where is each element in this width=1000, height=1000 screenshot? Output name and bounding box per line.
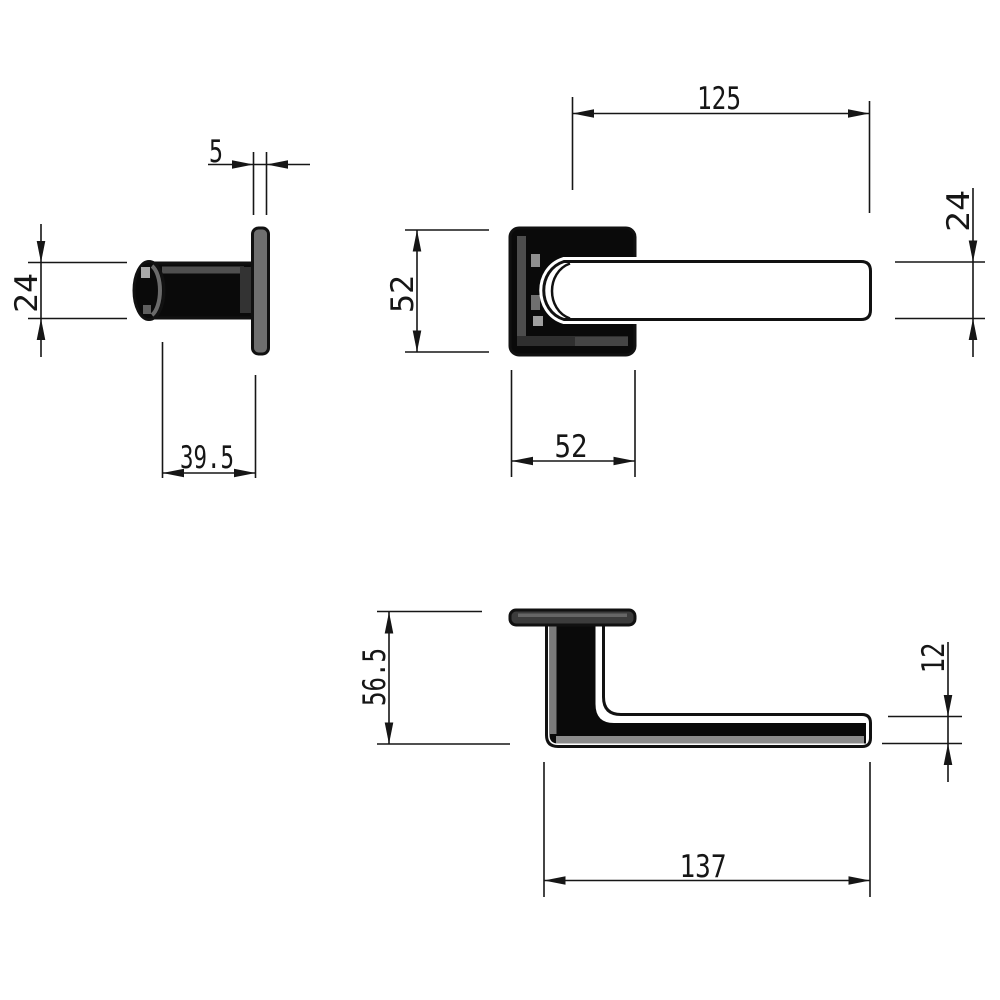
dim-rose-height: 52 xyxy=(385,230,489,352)
rose-plate-top xyxy=(510,610,635,625)
side-view: 5 24 39.5 xyxy=(9,134,310,478)
dim-label-rose-width: 52 xyxy=(555,429,588,465)
lever-front xyxy=(544,262,871,320)
dim-lever-height: 24 xyxy=(895,188,985,357)
dim-rose-width: 52 xyxy=(512,370,636,477)
dim-label-plate-thickness: 5 xyxy=(209,134,223,170)
dim-label-rose-height: 52 xyxy=(385,275,421,313)
dim-label-lever-height: 24 xyxy=(941,190,977,232)
technical-drawing-page: 5 24 39.5 xyxy=(0,0,1000,1000)
dim-lever-thickness: 12 xyxy=(882,642,962,782)
dim-label-lever-thickness: 12 xyxy=(916,643,952,674)
neck-side xyxy=(134,262,252,320)
technical-drawing: 5 24 39.5 xyxy=(0,0,1000,1000)
dim-label-overall-length: 137 xyxy=(680,849,727,885)
dim-overall-length: 137 xyxy=(544,762,870,897)
dim-label-handle-depth: 56.5 xyxy=(357,648,393,706)
front-view: 125 24 52 52 xyxy=(385,81,985,477)
handle-top xyxy=(547,620,871,747)
dim-neck-diameter: 24 xyxy=(9,224,127,357)
dim-label-neck-diameter: 24 xyxy=(9,273,45,313)
dim-label-lever-length: 125 xyxy=(697,81,741,117)
dim-handle-depth: 56.5 xyxy=(357,612,510,745)
rose-plate-side xyxy=(253,228,269,354)
top-view: 56.5 12 137 xyxy=(357,610,962,897)
dim-neck-projection: 39.5 xyxy=(163,342,256,478)
dim-plate-thickness: 5 xyxy=(208,134,310,215)
dim-lever-length: 125 xyxy=(573,81,870,213)
dim-label-neck-projection: 39.5 xyxy=(180,440,234,476)
